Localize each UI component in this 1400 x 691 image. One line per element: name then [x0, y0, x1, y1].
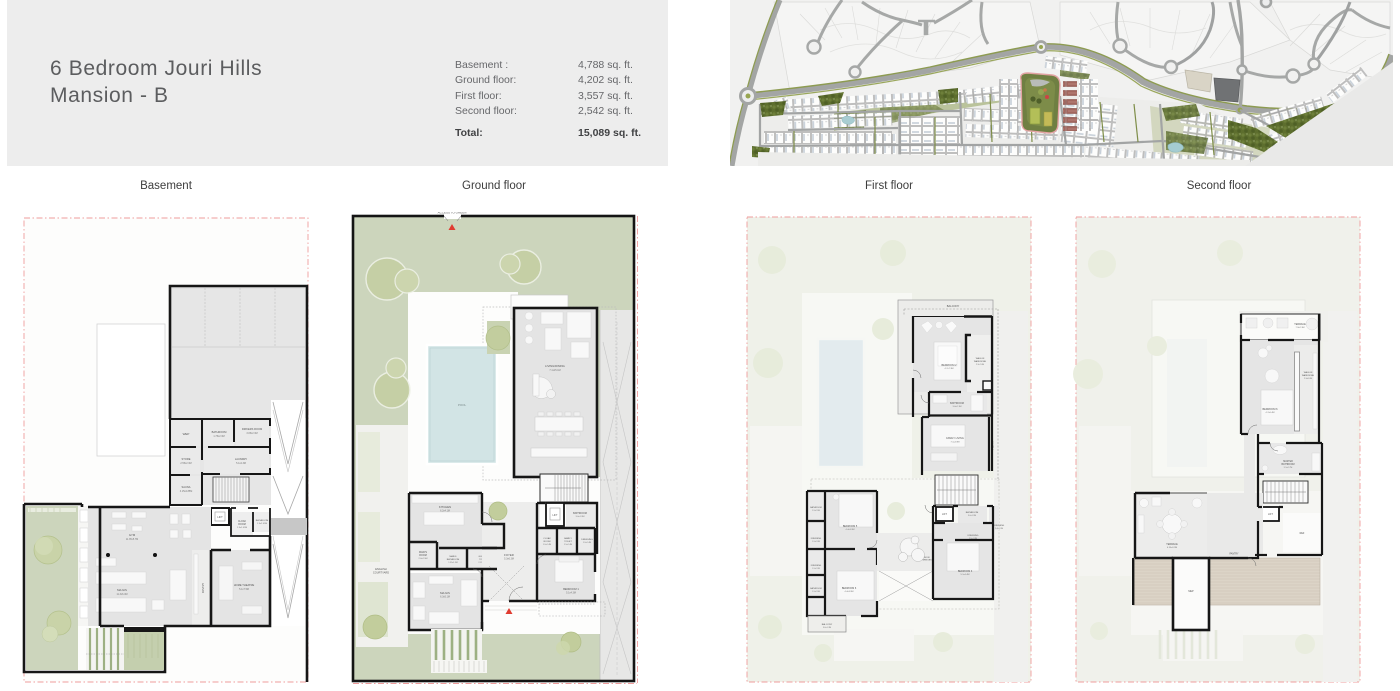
svg-text:4.4x3.9M: 4.4x3.9M: [846, 529, 855, 531]
svg-text:BEDROOM 6: BEDROOM 6: [1262, 408, 1278, 411]
svg-text:CLOAK: CLOAK: [543, 537, 551, 540]
svg-text:4.7x6.4M: 4.7x6.4M: [1266, 412, 1275, 414]
svg-text:2.55x2.3M: 2.55x2.3M: [180, 462, 191, 465]
svg-text:WALK-IN: WALK-IN: [976, 357, 985, 360]
svg-text:2.3x7.0M: 2.3x7.0M: [976, 364, 985, 366]
svg-text:3.0x1.9M: 3.0x1.9M: [576, 516, 585, 518]
svg-text:GYM: GYM: [129, 533, 136, 537]
svg-text:3.05x2.3M: 3.05x2.3M: [246, 432, 257, 435]
svg-text:DRESSING: DRESSING: [811, 538, 822, 540]
svg-text:6.3x5.1M: 6.3x5.1M: [440, 596, 450, 599]
svg-text:MAIDS: MAIDS: [450, 555, 457, 558]
svg-text:BATHROOM: BATHROOM: [256, 519, 269, 522]
svg-text:5.1x4.3M: 5.1x4.3M: [566, 592, 576, 595]
svg-text:3.6x1.3M: 3.6x1.3M: [823, 627, 832, 629]
svg-text:BATHROOM: BATHROOM: [447, 558, 460, 561]
svg-text:BEDROOM 3: BEDROOM 3: [958, 570, 973, 573]
svg-text:1.9x2.3M: 1.9x2.3M: [812, 568, 820, 570]
svg-text:BALCONY: BALCONY: [947, 304, 960, 308]
svg-text:5.1x2.3M: 5.1x2.3M: [236, 462, 246, 465]
svg-text:5.1x4.4M: 5.1x4.4M: [961, 574, 970, 576]
svg-text:WARDROBE: WARDROBE: [974, 360, 987, 363]
svg-text:ROOM: ROOM: [238, 523, 245, 526]
svg-text:WARDROBE: WARDROBE: [1302, 374, 1315, 377]
svg-text:DRIVERS ROOM: DRIVERS ROOM: [242, 427, 262, 431]
svg-text:MASTER: MASTER: [1283, 460, 1293, 463]
svg-text:6.2x4.1M: 6.2x4.1M: [440, 510, 450, 513]
svg-text:WALK-IN: WALK-IN: [1304, 371, 1313, 374]
svg-text:1.95x1.3M: 1.95x1.3M: [448, 562, 458, 564]
svg-text:1.9x2.4M: 1.9x2.4M: [543, 544, 552, 546]
svg-text:LIFT: LIFT: [1268, 513, 1273, 516]
svg-text:BATHROOM: BATHROOM: [810, 506, 822, 509]
svg-text:BATHROOM: BATHROOM: [1281, 463, 1294, 466]
svg-text:TOILET: TOILET: [564, 541, 572, 543]
svg-text:ENGLISH: ENGLISH: [375, 567, 387, 571]
svg-text:ROOM: ROOM: [544, 541, 551, 543]
svg-text:2.4x1.9M: 2.4x1.9M: [995, 528, 1004, 530]
svg-text:ACCESS TO GREEN: ACCESS TO GREEN: [438, 212, 467, 215]
svg-text:DRESSING: DRESSING: [811, 565, 822, 567]
svg-text:PANTRY: PANTRY: [1229, 553, 1239, 556]
svg-text:BEDROOM 5: BEDROOM 5: [843, 525, 858, 528]
svg-text:DRESSING: DRESSING: [968, 535, 979, 537]
svg-text:1.9x2.45M: 1.9x2.45M: [237, 527, 247, 529]
svg-text:BEDROOM 1: BEDROOM 1: [563, 587, 579, 591]
svg-text:POOL: POOL: [458, 403, 467, 407]
svg-text:1.9x2.9M: 1.9x2.9M: [812, 591, 820, 593]
svg-text:DRESSING: DRESSING: [994, 525, 1005, 527]
svg-text:FOYER: FOYER: [504, 553, 514, 557]
svg-text:5.3x6.3M: 5.3x6.3M: [504, 558, 514, 561]
svg-text:11.35x5.7M: 11.35x5.7M: [126, 538, 138, 541]
svg-text:LAUNDRY: LAUNDRY: [235, 457, 248, 461]
svg-text:11.3x6.4M: 11.3x6.4M: [117, 593, 128, 596]
svg-text:SAUNA: SAUNA: [182, 485, 191, 489]
svg-text:TERRACE: TERRACE: [1166, 543, 1178, 546]
svg-text:5.1x7.5M: 5.1x7.5M: [239, 588, 249, 591]
svg-text:SHELVES: SHELVES: [922, 560, 932, 562]
svg-text:FAMILY LIVING: FAMILY LIVING: [946, 437, 964, 440]
svg-text:2.6x2.5M: 2.6x2.5M: [419, 558, 428, 560]
svg-text:MEP: MEP: [1188, 590, 1194, 593]
svg-text:BEDROOM 6: BEDROOM 6: [842, 587, 857, 590]
svg-text:REF: REF: [1300, 532, 1305, 535]
svg-text:KITCHEN: KITCHEN: [439, 505, 451, 509]
svg-text:1.9x2.45M: 1.9x2.45M: [257, 523, 267, 525]
svg-text:1.9x2.3M: 1.9x2.3M: [812, 541, 820, 543]
svg-text:6.35x8.9M: 6.35x8.9M: [1167, 547, 1177, 549]
svg-text:LIVING/DINING: LIVING/DINING: [545, 364, 565, 368]
svg-text:PANTRY: PANTRY: [201, 583, 205, 594]
svg-text:2.3x8.0M: 2.3x8.0M: [1304, 378, 1313, 380]
svg-text:STORE: STORE: [182, 457, 191, 461]
svg-text:COURTYARD: COURTYARD: [373, 571, 389, 575]
svg-text:1.75x2.3M: 1.75x2.3M: [213, 435, 224, 438]
svg-text:4.4x3.9M: 4.4x3.9M: [845, 591, 854, 593]
svg-text:BATHROOM: BATHROOM: [950, 402, 964, 405]
svg-text:LIFT: LIFT: [217, 515, 223, 519]
svg-text:1.5x2.4M: 1.5x2.4M: [564, 544, 573, 546]
svg-text:BATHROOM: BATHROOM: [810, 587, 822, 590]
svg-text:BATHROOM: BATHROOM: [212, 430, 227, 434]
svg-text:7.9x2.3M: 7.9x2.3M: [1296, 327, 1305, 329]
svg-text:3.6x2.1M: 3.6x2.1M: [953, 406, 962, 408]
svg-text:1.9x2.4M: 1.9x2.4M: [583, 542, 592, 544]
svg-text:1.9x2.9M: 1.9x2.9M: [812, 510, 820, 512]
svg-text:MAJLIS: MAJLIS: [117, 588, 127, 592]
svg-text:BATHROOM: BATHROOM: [573, 512, 587, 515]
svg-text:5.5x2.7M: 5.5x2.7M: [1284, 467, 1293, 469]
svg-text:BATHROOM: BATHROOM: [966, 511, 979, 514]
svg-text:TERRACE: TERRACE: [1294, 323, 1306, 326]
svg-text:4.7x7.3M: 4.7x7.3M: [945, 368, 954, 370]
svg-text:7.1x15.1M: 7.1x15.1M: [549, 369, 560, 372]
svg-text:3.0x1.9M: 3.0x1.9M: [968, 515, 977, 517]
svg-text:LIFT: LIFT: [553, 514, 558, 517]
svg-text:ROOM: ROOM: [419, 554, 426, 557]
svg-text:MAJLIS: MAJLIS: [440, 591, 450, 595]
svg-text:HOME THEATRE: HOME THEATRE: [234, 583, 255, 587]
svg-text:7.1x4.9M: 7.1x4.9M: [951, 442, 960, 444]
svg-text:WEP: WEP: [183, 432, 190, 436]
svg-text:DRESSING: DRESSING: [581, 539, 593, 541]
svg-text:FAMILY: FAMILY: [564, 537, 572, 540]
svg-text:LIFT: LIFT: [942, 513, 947, 516]
svg-text:BALCONY: BALCONY: [822, 623, 833, 626]
svg-text:3.15x2.85M: 3.15x2.85M: [180, 490, 193, 493]
svg-text:BEDROOM 2: BEDROOM 2: [941, 364, 957, 367]
